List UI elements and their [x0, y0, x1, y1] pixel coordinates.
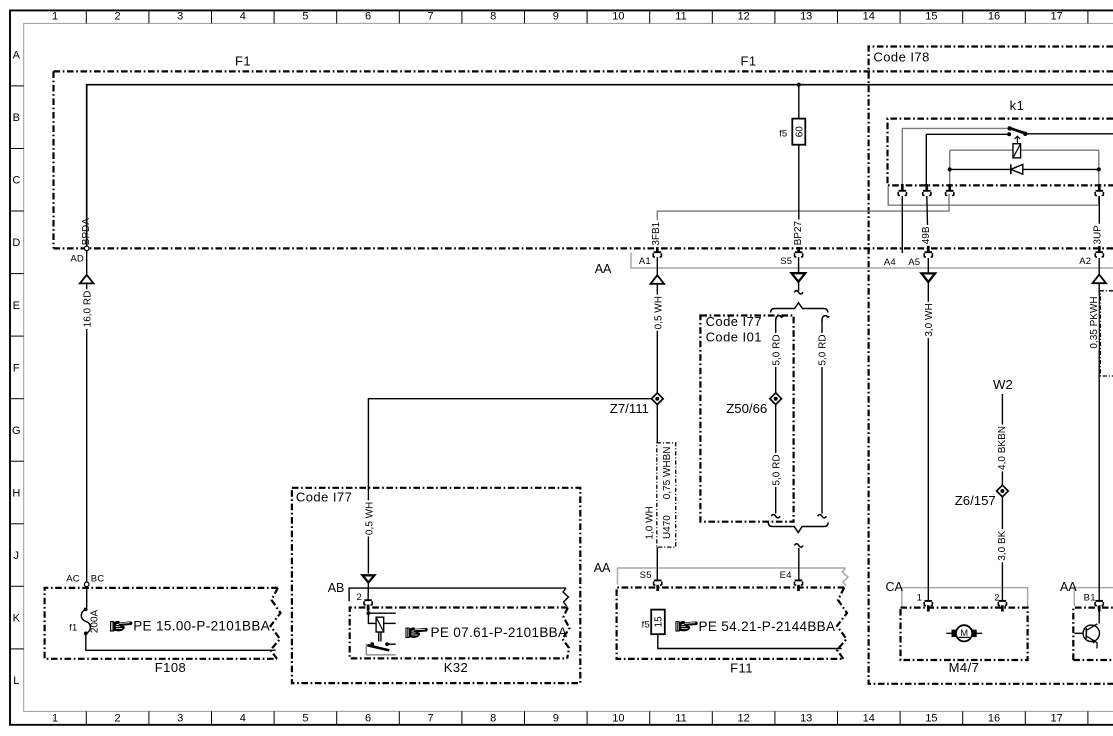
svg-text:15: 15 — [925, 713, 937, 725]
svg-text:13: 13 — [800, 11, 812, 23]
svg-text:S5: S5 — [780, 256, 792, 267]
svg-text:5,0 RD: 5,0 RD — [771, 454, 782, 485]
svg-text:1: 1 — [52, 713, 58, 725]
svg-text:PE 07.61-P-2101BBA: PE 07.61-P-2101BBA — [431, 625, 568, 640]
svg-text:8: 8 — [490, 713, 496, 725]
svg-text:F108: F108 — [155, 660, 186, 675]
svg-text:L: L — [13, 675, 19, 687]
svg-text:G: G — [12, 425, 21, 437]
svg-text:A2: A2 — [1079, 256, 1091, 267]
svg-text:f5: f5 — [779, 129, 787, 140]
svg-text:M4/7: M4/7 — [949, 660, 980, 675]
svg-text:BC: BC — [91, 573, 105, 584]
svg-text:15: 15 — [653, 616, 664, 628]
svg-text:Code I77: Code I77 — [706, 314, 762, 329]
svg-text:9: 9 — [553, 713, 559, 725]
svg-text:4: 4 — [240, 11, 246, 23]
svg-text:15: 15 — [925, 11, 937, 23]
svg-text:BPDA: BPDA — [81, 218, 92, 246]
svg-text:11: 11 — [675, 713, 686, 725]
svg-text:5,0 RD: 5,0 RD — [771, 334, 782, 365]
svg-text:F1: F1 — [235, 54, 251, 69]
svg-text:5: 5 — [302, 11, 308, 23]
svg-text:2: 2 — [994, 593, 999, 604]
svg-text:200A: 200A — [89, 609, 100, 633]
svg-text:3FB1: 3FB1 — [651, 221, 662, 245]
svg-text:A4: A4 — [884, 257, 896, 268]
svg-text:k1: k1 — [1010, 98, 1025, 113]
svg-text:A1: A1 — [639, 256, 651, 267]
svg-text:16: 16 — [988, 11, 1000, 23]
svg-text:14: 14 — [863, 11, 875, 23]
svg-text:13: 13 — [800, 713, 812, 725]
svg-text:12: 12 — [737, 11, 749, 23]
svg-text:49B: 49B — [921, 226, 932, 244]
svg-text:1: 1 — [52, 11, 58, 23]
svg-text:2: 2 — [115, 713, 121, 725]
svg-text:Z6/157: Z6/157 — [955, 493, 996, 508]
svg-text:W2: W2 — [993, 377, 1013, 392]
svg-text:10: 10 — [612, 713, 624, 725]
svg-text:J: J — [14, 550, 20, 562]
svg-text:Code I01: Code I01 — [706, 330, 762, 345]
svg-text:3,0 WH: 3,0 WH — [924, 303, 935, 336]
svg-text:9: 9 — [553, 11, 559, 23]
svg-text:10: 10 — [612, 11, 624, 23]
svg-text:1,0 WH: 1,0 WH — [644, 506, 655, 539]
svg-text:Z7/111: Z7/111 — [610, 401, 649, 416]
svg-text:B: B — [13, 112, 20, 124]
svg-text:6: 6 — [365, 11, 371, 23]
svg-text:BP27: BP27 — [793, 221, 804, 246]
svg-text:AB: AB — [328, 581, 345, 595]
svg-text:B1: B1 — [1084, 593, 1096, 604]
svg-text:Z50/66: Z50/66 — [726, 401, 767, 416]
svg-text:17: 17 — [1050, 713, 1062, 725]
svg-text:A: A — [13, 50, 21, 62]
svg-text:PE 54.21-P-2144BBA: PE 54.21-P-2144BBA — [699, 619, 836, 634]
svg-text:5: 5 — [302, 713, 308, 725]
svg-text:Code I77: Code I77 — [296, 489, 352, 504]
svg-text:C: C — [12, 175, 20, 187]
svg-text:16,0 RD: 16,0 RD — [83, 291, 94, 328]
svg-text:8: 8 — [490, 11, 496, 23]
svg-text:E: E — [13, 300, 20, 312]
svg-text:U470: U470 — [662, 515, 673, 539]
svg-text:5,0 RD: 5,0 RD — [818, 334, 829, 365]
svg-text:CA: CA — [886, 580, 904, 594]
svg-text:f1: f1 — [69, 623, 77, 634]
svg-text:Code I78: Code I78 — [873, 49, 929, 64]
svg-text:AA: AA — [594, 561, 611, 575]
svg-text:0,5 WH: 0,5 WH — [653, 296, 664, 329]
svg-text:4,0 BKBN: 4,0 BKBN — [997, 426, 1008, 470]
svg-text:11: 11 — [675, 11, 686, 23]
svg-text:PE 15.00-P-2101BBA: PE 15.00-P-2101BBA — [133, 618, 270, 633]
svg-text:f5: f5 — [642, 619, 650, 630]
svg-text:AA: AA — [1060, 580, 1077, 594]
svg-text:D: D — [12, 237, 20, 249]
svg-text:F: F — [13, 362, 20, 374]
svg-text:3UP: 3UP — [1092, 225, 1103, 245]
svg-text:3: 3 — [177, 11, 183, 23]
svg-text:2: 2 — [115, 11, 121, 23]
svg-text:3,0 BK: 3,0 BK — [997, 530, 1008, 560]
svg-text:12: 12 — [737, 713, 749, 725]
svg-text:3: 3 — [177, 713, 183, 725]
svg-text:2: 2 — [357, 592, 362, 603]
svg-text:0,5 WH: 0,5 WH — [364, 502, 375, 535]
svg-text:AC: AC — [66, 573, 80, 584]
svg-text:F1: F1 — [740, 54, 756, 69]
svg-text:17: 17 — [1050, 11, 1062, 23]
svg-text:E4: E4 — [780, 570, 792, 581]
svg-text:AA: AA — [595, 262, 612, 276]
svg-text:7: 7 — [428, 713, 434, 725]
svg-text:4: 4 — [240, 713, 246, 725]
svg-text:K32: K32 — [444, 660, 468, 675]
svg-text:16: 16 — [988, 713, 1000, 725]
svg-text:K: K — [13, 613, 21, 625]
svg-text:S5: S5 — [640, 570, 652, 581]
svg-text:AD: AD — [70, 254, 84, 265]
svg-text:H: H — [12, 487, 20, 499]
svg-text:60: 60 — [795, 126, 806, 138]
svg-text:0,75 WHBN: 0,75 WHBN — [662, 447, 673, 500]
svg-text:7: 7 — [428, 11, 434, 23]
svg-text:1: 1 — [917, 593, 922, 604]
svg-text:6: 6 — [365, 713, 371, 725]
svg-text:A5: A5 — [908, 257, 920, 268]
svg-text:14: 14 — [863, 713, 875, 725]
svg-text:0,35 PKWH: 0,35 PKWH — [1089, 296, 1100, 348]
svg-text:M: M — [960, 627, 968, 638]
svg-text:F11: F11 — [730, 660, 753, 675]
